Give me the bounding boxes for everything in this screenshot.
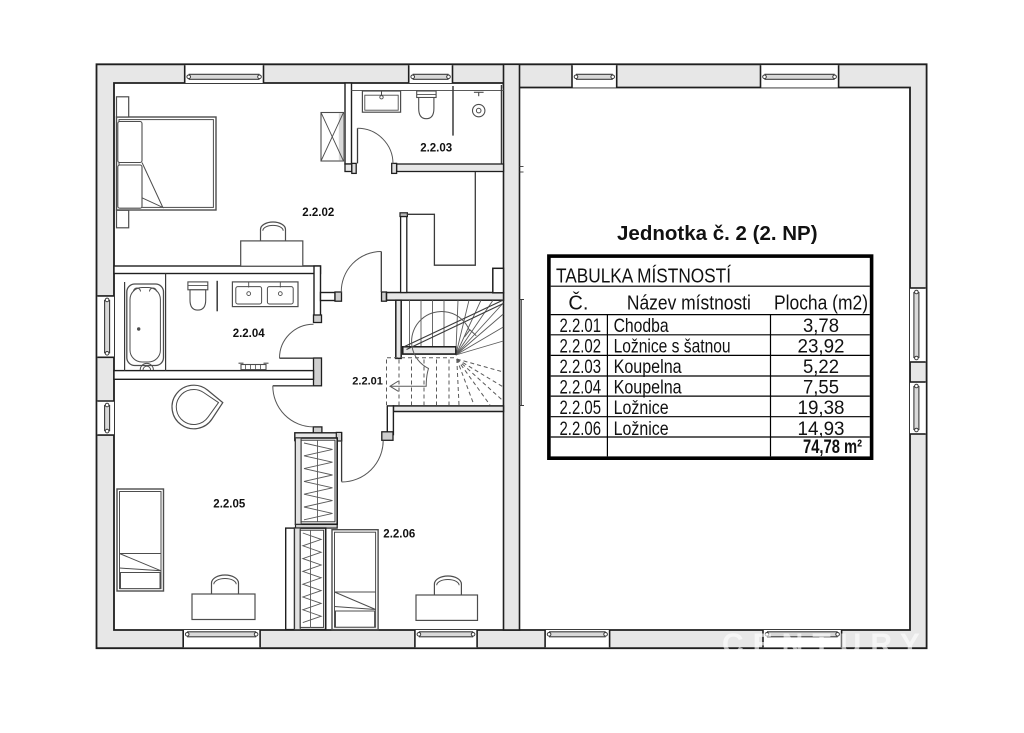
svg-text:Název místnosti: Název místnosti [627, 293, 751, 315]
svg-text:Chodba: Chodba [614, 316, 669, 337]
svg-text:Ložnice: Ložnice [614, 419, 669, 440]
svg-text:Ložnice s šatnou: Ložnice s šatnou [614, 336, 731, 357]
svg-text:19,38: 19,38 [798, 398, 845, 419]
svg-text:Jednotka č. 2 (2. NP): Jednotka č. 2 (2. NP) [617, 222, 818, 245]
svg-text:2.2.06: 2.2.06 [383, 529, 415, 541]
svg-text:23,92: 23,92 [798, 336, 845, 357]
svg-text:2.2.03: 2.2.03 [420, 142, 452, 154]
svg-text:Ložnice: Ložnice [614, 398, 669, 419]
svg-text:3,78: 3,78 [803, 316, 839, 337]
svg-text:2.2.02: 2.2.02 [560, 336, 602, 357]
svg-text:2.2.01: 2.2.01 [560, 316, 602, 337]
svg-text:2.2.05: 2.2.05 [560, 398, 602, 419]
svg-text:2.2.02: 2.2.02 [302, 207, 334, 219]
svg-text:Plocha (m2): Plocha (m2) [774, 293, 868, 315]
svg-text:2.2.03: 2.2.03 [560, 357, 602, 378]
svg-text:7,55: 7,55 [803, 378, 839, 399]
svg-text:Koupelna: Koupelna [614, 378, 682, 399]
svg-text:Č.: Č. [568, 292, 588, 315]
svg-text:5,22: 5,22 [803, 357, 839, 378]
svg-text:Koupelna: Koupelna [614, 357, 682, 378]
svg-text:TABULKA MÍSTNOSTÍ: TABULKA MÍSTNOSTÍ [556, 265, 731, 288]
svg-text:CENTURY 21: CENTURY 21 [722, 628, 997, 661]
svg-text:2.2.05: 2.2.05 [213, 498, 246, 510]
svg-text:74,78 m²: 74,78 m² [803, 437, 862, 458]
svg-text:2.2.04: 2.2.04 [233, 328, 266, 340]
svg-text:2.2.04: 2.2.04 [560, 378, 602, 399]
svg-text:2.2.01: 2.2.01 [352, 376, 383, 388]
svg-text:2.2.06: 2.2.06 [560, 419, 602, 440]
